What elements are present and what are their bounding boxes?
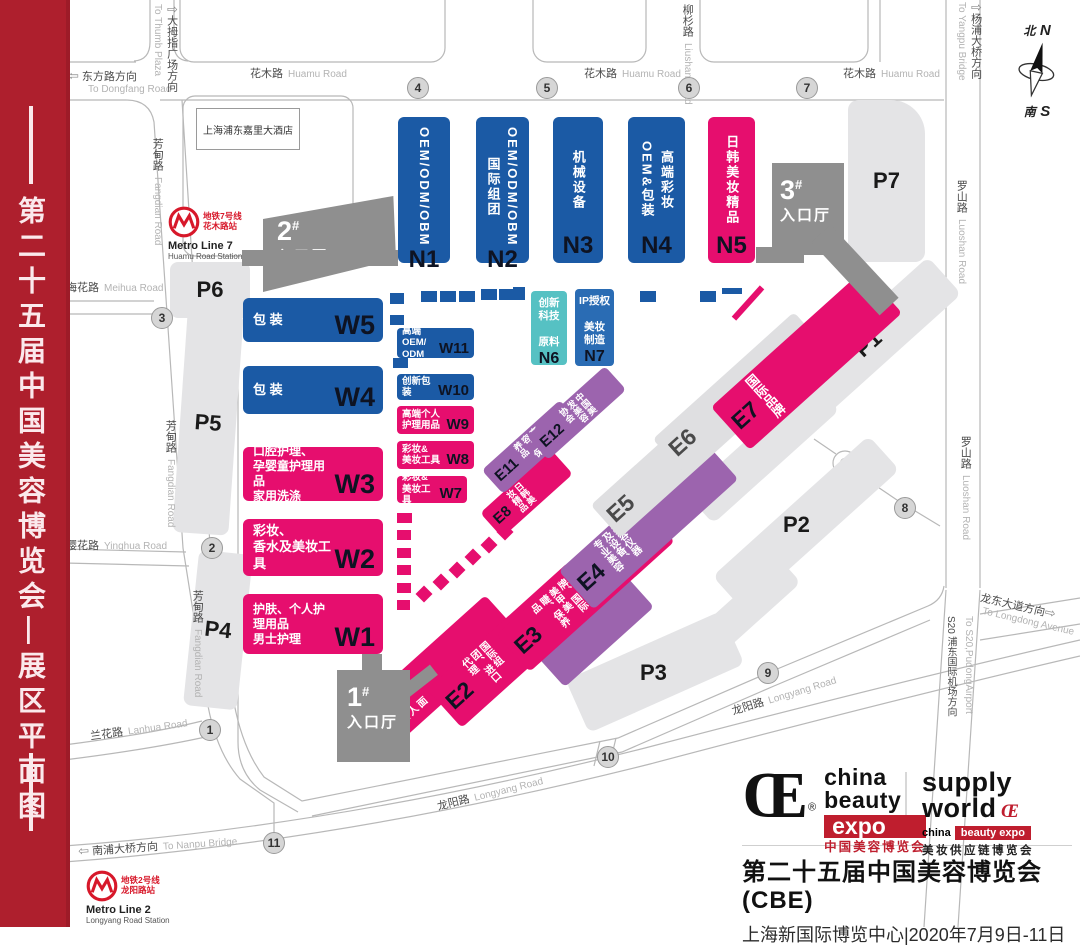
hall-code: E12	[537, 421, 567, 450]
hall-code: W1	[335, 624, 376, 651]
hall-code: N7	[584, 348, 604, 366]
page-title: 第二十五届中国美容博览会—展区平面图	[16, 196, 44, 826]
cbe-logo-mark: Œ	[742, 759, 808, 832]
hall-code: W9	[447, 417, 470, 432]
compass-needle-icon	[1008, 36, 1065, 102]
side-banner: 第二十五届中国美容博览会—展区平面图	[0, 0, 70, 927]
road-label-s20: S20 浦东国际机场方向 To S20,PudongAirport	[944, 616, 974, 746]
compass: 北 N 南 S	[1002, 22, 1072, 121]
gate-4: 4	[407, 77, 429, 99]
parking-p3-label: P3	[640, 660, 667, 686]
hall-n2: OEM/ODM/OBM国际组团 N2	[476, 117, 529, 263]
hall-label: 彩妆& 美妆工具	[402, 472, 440, 506]
booth-block	[397, 548, 411, 558]
hall-w5: 包 装 W5	[243, 298, 383, 342]
hall-label: 创新包装	[402, 376, 438, 399]
hall-label: 创新 科技 原料	[539, 297, 560, 350]
hall-w8: 彩妆& 美妆工具 W8	[397, 441, 474, 469]
cbe-expo-badge: expo	[824, 815, 926, 838]
hall-label: 护肤、个人护理用品 男士护理	[253, 602, 335, 647]
hall-label: 高端OEM/ ODM	[402, 326, 439, 360]
hall-code: W2	[335, 546, 376, 573]
gate-9: 9	[757, 662, 779, 684]
parking-p7: P7	[848, 100, 925, 262]
gate-7: 7	[796, 77, 818, 99]
hall-label: 高端彩妆OEM&包装	[637, 127, 676, 233]
banner-accent-line	[29, 753, 33, 831]
hall-n1: OEM/ODM/OBM N1	[398, 117, 450, 263]
road-label-huamu: 花木路Huamu Road	[584, 68, 681, 81]
road-label-thumb: To Thumb Plaza ⇧大拇指广场方向	[146, 4, 180, 124]
hall-label: 口腔护理、 孕婴童护理用品 家用洗涤	[253, 444, 335, 504]
hall-code: E11	[492, 455, 521, 483]
city-block	[533, 0, 646, 62]
booth-block	[481, 289, 497, 300]
hall-w7: 彩妆& 美妆工具 W7	[397, 476, 467, 503]
left-arrow-icon: ⇦	[78, 843, 90, 859]
hall-label: 机械设备	[568, 127, 588, 233]
parking-p2-label: P2	[783, 512, 810, 538]
parking-code: P4	[203, 616, 232, 645]
gate-10: 10	[597, 746, 619, 768]
entrance-hall-1: 1# 入口厅	[337, 670, 410, 762]
booth-block	[459, 291, 475, 302]
road-label-fangdian: 芳甸路Fangdian Road	[150, 138, 163, 245]
event-caption: 第二十五届中国美容博览会(CBE) 上海新国际博览中心|2020年7月9日-11…	[742, 852, 1080, 947]
hall-code: N1	[409, 247, 440, 273]
parking-code: P7	[873, 168, 900, 194]
road-label-fangdian: 芳甸路Fangdian Road	[163, 420, 176, 527]
booth-block	[640, 291, 656, 302]
entrance-label: 入口厅	[347, 711, 410, 732]
gate-1: 1	[199, 719, 221, 741]
booth-block	[397, 513, 412, 523]
booth-block	[393, 358, 408, 368]
entrance-number: 3#	[780, 177, 844, 204]
hotel-kerry: 上海浦东嘉里大酒店	[196, 108, 300, 150]
hall-n4: 高端彩妆OEM&包装 N4	[628, 117, 685, 263]
hall-label: OEM/ODM/OBM	[414, 127, 434, 247]
hall-label: 日韩美妆精品	[722, 127, 742, 233]
hall-w9: 高端个人 护理用品 W9	[397, 406, 474, 434]
entrance-number: 2#	[277, 218, 396, 245]
booth-block	[397, 565, 411, 575]
booth-block	[397, 600, 410, 610]
cbe-word: beauty	[824, 789, 926, 812]
booth-block	[722, 288, 742, 294]
booth-block	[513, 287, 525, 300]
gate-11: 11	[263, 832, 285, 854]
hall-label: 彩妆& 美妆工具	[402, 444, 447, 467]
booth-block	[397, 583, 411, 593]
road-label-yangpu: To Yangpu Bridge ⇧杨浦大桥方向	[950, 2, 984, 122]
hall-w11: 高端OEM/ ODM W11	[397, 328, 474, 358]
booth-block	[421, 291, 437, 302]
cbe-word: china	[824, 766, 926, 789]
hall-label: 彩妆、 香水及美妆工具	[253, 523, 335, 572]
hall-code: N4	[641, 233, 672, 259]
hall-w2: 彩妆、 香水及美妆工具 W2	[243, 519, 383, 576]
banner-accent-line	[29, 106, 33, 184]
sw-logo-mark: Œ	[1001, 801, 1019, 822]
metro-logo-icon	[168, 206, 200, 238]
gate-6: 6	[678, 77, 700, 99]
event-title: 第二十五届中国美容博览会(CBE)	[742, 852, 1080, 915]
meihua-road	[64, 301, 157, 314]
city-block	[700, 0, 868, 62]
road-label-meihua: 梅花路Meihua Road	[66, 282, 163, 295]
cbe-logo: Œ® china beauty expo 中国美容博览会	[742, 766, 926, 854]
city-block	[180, 0, 445, 62]
metro-line2-station: 地铁2号线龙阳路站 Metro Line 2 Longyang Road Sta…	[86, 870, 170, 925]
hall-code: W7	[440, 486, 463, 501]
hall-code: E7	[727, 397, 763, 433]
hall-code: N3	[563, 233, 594, 259]
hall-n3: 机械设备 N3	[553, 117, 603, 263]
hall-label: OEM/ODM/OBM国际组团	[483, 127, 522, 247]
road-label-yinghua: 樱花路Yinghua Road	[66, 540, 167, 553]
road-label-huamu: 花木路Huamu Road	[843, 68, 940, 81]
booth-block	[390, 293, 404, 304]
hall-w10: 创新包装 W10	[397, 374, 474, 400]
parking-code: P6	[197, 277, 224, 303]
hall-code: E2	[441, 677, 477, 713]
hall-code: W3	[335, 471, 376, 498]
gate-8: 8	[894, 497, 916, 519]
gate-5: 5	[536, 77, 558, 99]
hall-w3: 口腔护理、 孕婴童护理用品 家用洗涤 W3	[243, 447, 383, 501]
metro-line7-station: 地铁7号线花木路站 Metro Line 7 Huamu Road Statio…	[168, 206, 242, 261]
right-arrow-icon: ⇨	[1043, 604, 1057, 621]
booth-block	[700, 291, 716, 302]
hall-label: 高端个人 护理用品	[402, 409, 447, 432]
hall-code: N2	[487, 247, 518, 273]
gate-3: 3	[151, 307, 173, 329]
metro-logo-icon	[86, 870, 118, 902]
sw-badge-red: beauty expo	[955, 826, 1031, 840]
hall-code: W10	[438, 383, 469, 398]
hall-w1: 护肤、个人护理用品 男士护理 W1	[243, 594, 383, 654]
hall-code: E6	[664, 424, 700, 460]
hall-label: IP授权 美妆 制造	[579, 295, 610, 348]
hall-code: W11	[439, 341, 469, 356]
road-label-luoshan: 罗山路Luoshan Road	[958, 436, 971, 540]
road-label-fangdian: 芳甸路Fangdian Road	[190, 590, 203, 697]
up-arrow-icon: ⇧	[165, 4, 180, 15]
hall-label: 包 装	[253, 312, 335, 328]
hall-n5: 日韩美妆精品 N5	[708, 117, 755, 263]
hall-w4: 包 装 W4	[243, 366, 383, 414]
supply-world-logo: supply world Œ chinabeauty expo 美妆供应链博览会	[922, 770, 1034, 858]
hall-n7: IP授权 美妆 制造 N7	[575, 289, 614, 366]
hall-n6: 创新 科技 原料 N6	[531, 291, 567, 365]
hall-code: N6	[539, 350, 559, 368]
parking-code: P5	[194, 409, 223, 437]
parking-p6: P6	[170, 262, 250, 318]
road-label-huamu: 花木路Huamu Road	[250, 68, 347, 81]
booth-block	[390, 315, 404, 325]
entrance-hall-1-stub	[362, 654, 382, 671]
entrance-concourse	[242, 250, 398, 266]
booth-block	[397, 530, 411, 540]
hall-code: N5	[716, 233, 747, 259]
road-label-luoshan: 罗山路Luoshan Road	[954, 180, 967, 284]
hall-code: E8	[491, 503, 515, 526]
hall-code: W5	[335, 312, 376, 339]
hall-label: 包 装	[253, 382, 335, 398]
event-venue-date: 上海新国际博览中心|2020年7月9日-11日	[742, 921, 1080, 947]
hall-code: E5	[602, 490, 638, 526]
hall-code: W4	[335, 384, 376, 411]
entrance-label: 入口厅	[780, 204, 844, 225]
hall-code: E3	[510, 622, 546, 658]
hall-code: E4	[573, 559, 609, 595]
hall-code: W8	[447, 452, 470, 467]
up-arrow-icon: ⇧	[969, 2, 984, 13]
booth-block	[440, 291, 456, 302]
gate-2: 2	[201, 537, 223, 559]
